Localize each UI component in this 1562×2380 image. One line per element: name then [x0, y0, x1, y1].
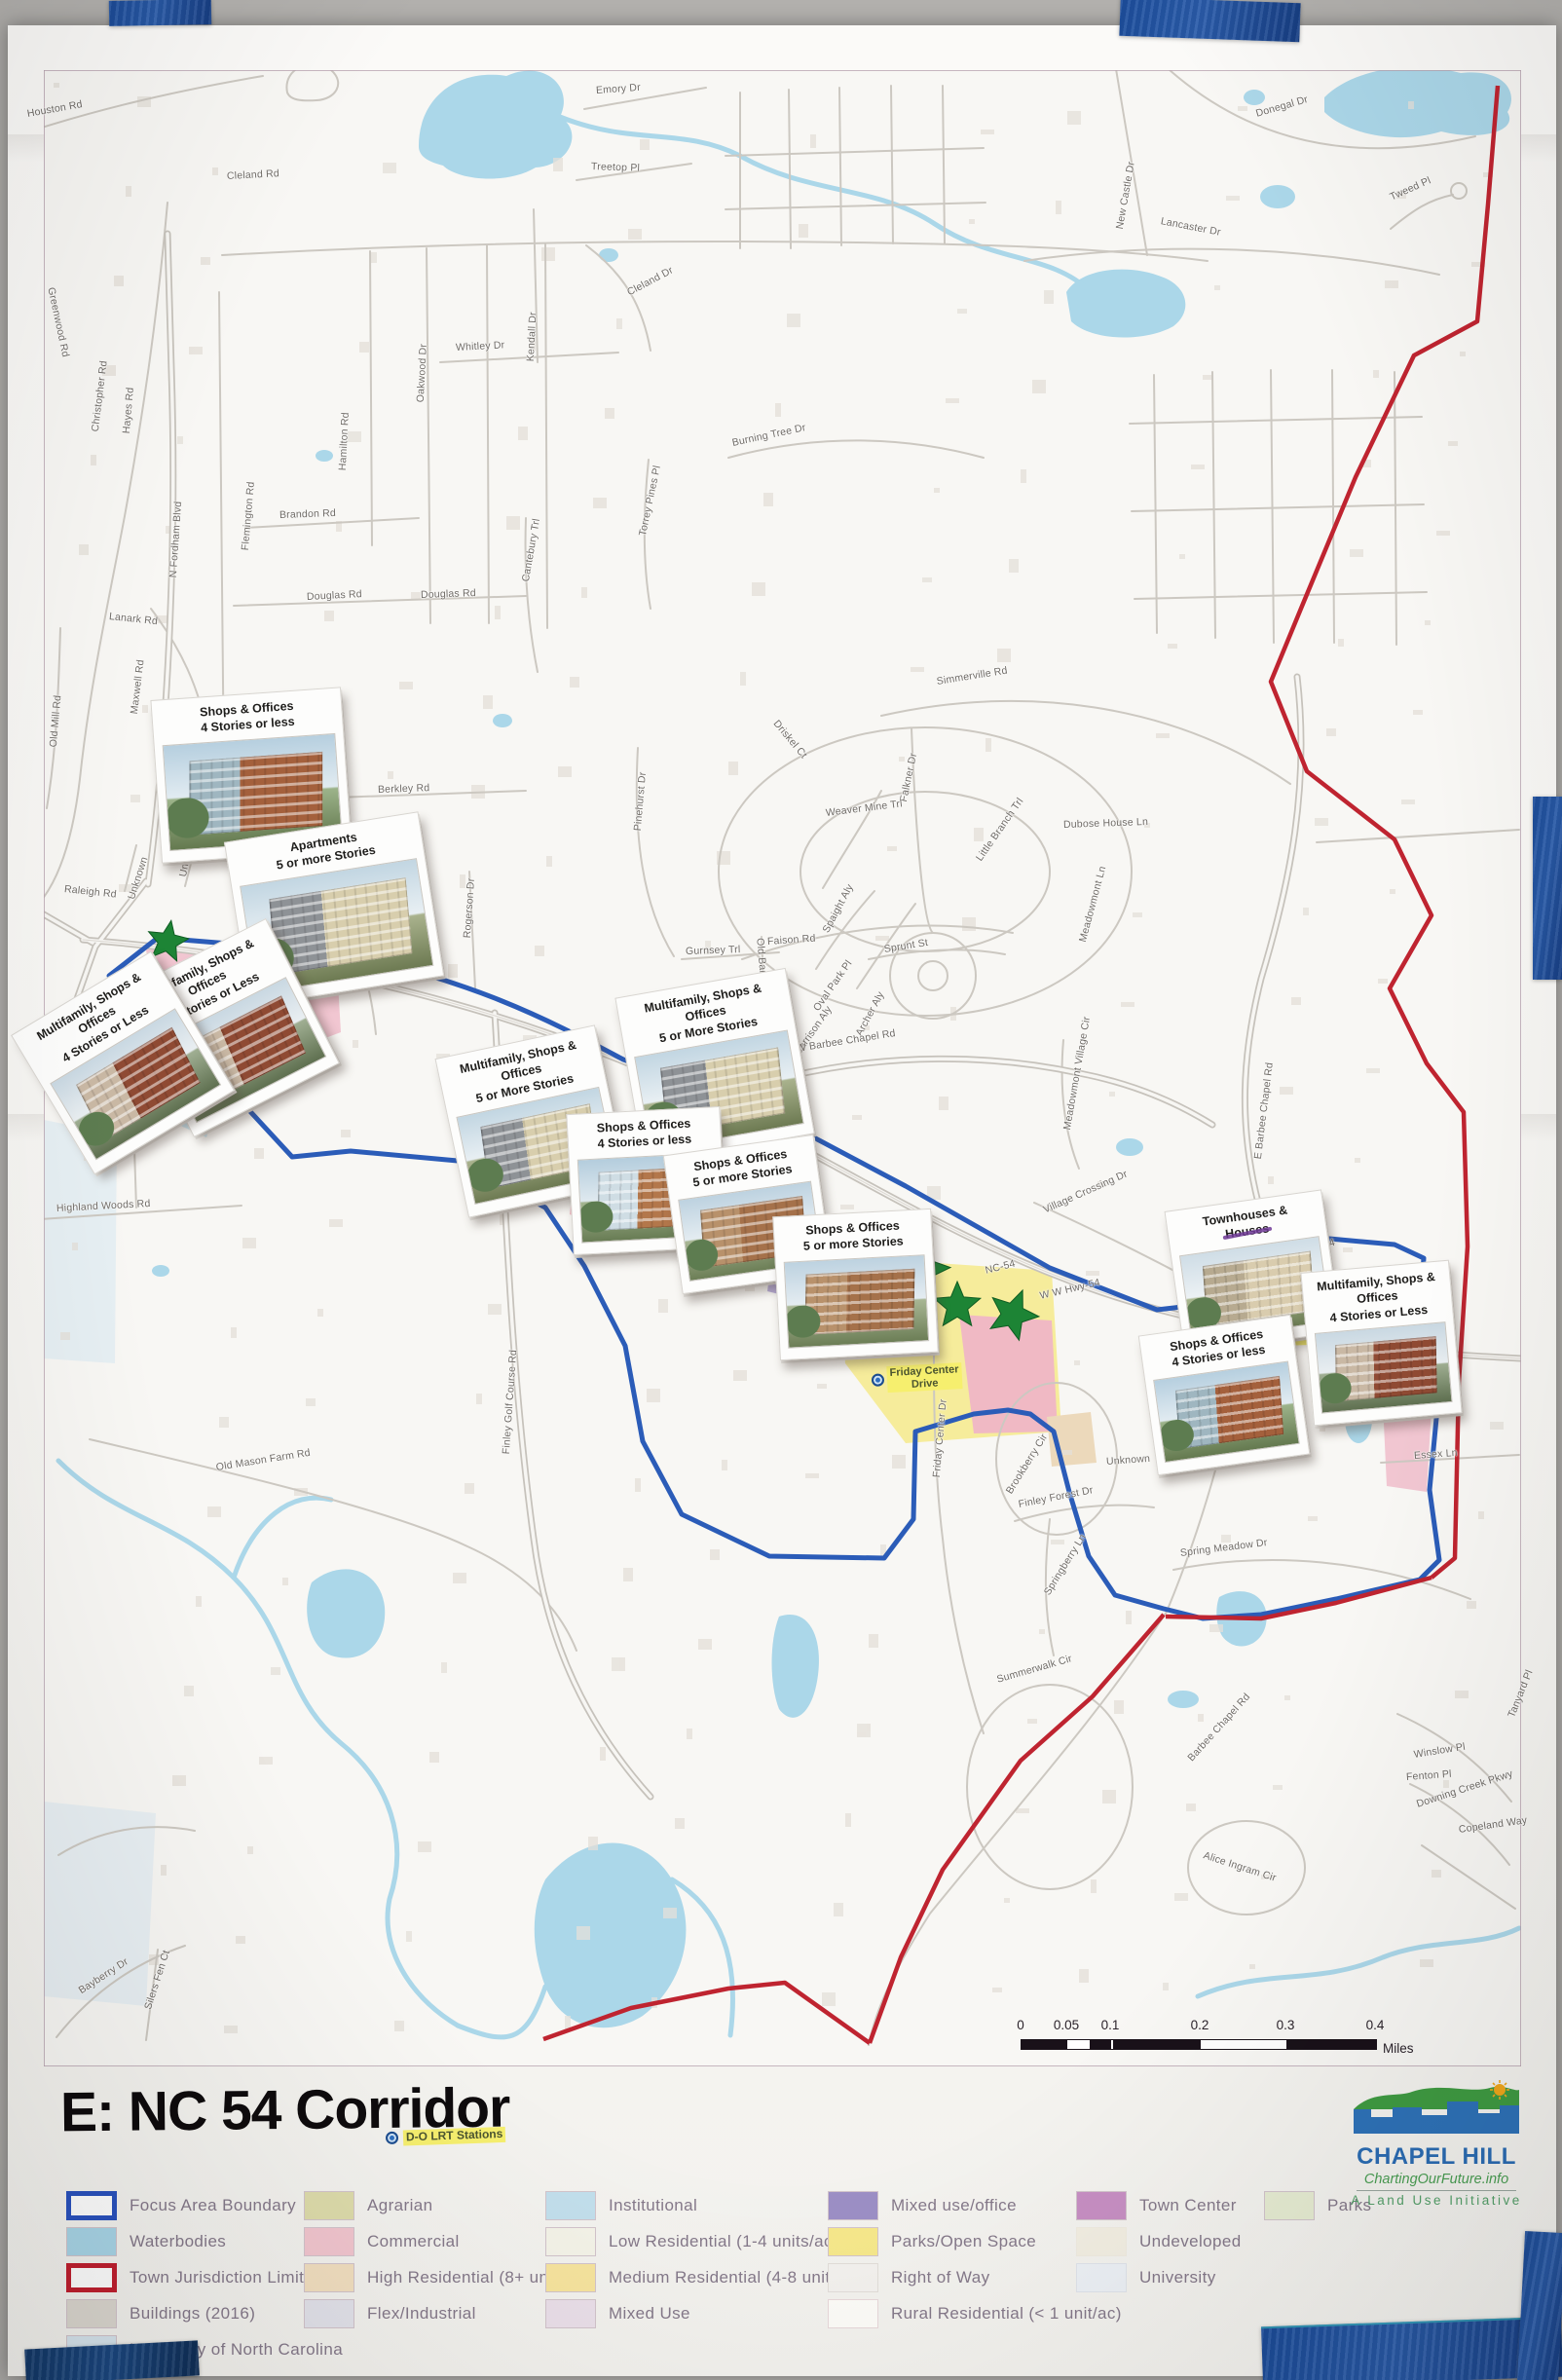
legend-swatch	[545, 2227, 596, 2256]
legend-swatch	[828, 2299, 878, 2328]
legend-item: Mixed use/office	[828, 2191, 1017, 2220]
photo-card-label: Shops & Offices4 Stories or less	[576, 1114, 714, 1153]
legend-label: Low Residential (1-4 units/ac)	[609, 2232, 838, 2251]
legend-item: Rural Residential (< 1 unit/ac)	[828, 2299, 1122, 2328]
legend-label: Town Jurisdiction Limits	[130, 2268, 313, 2287]
legend-swatch	[1264, 2191, 1315, 2220]
legend-item: Focus Area Boundary	[66, 2191, 296, 2220]
legend-swatch	[304, 2263, 354, 2292]
legend-swatch	[828, 2227, 878, 2256]
legend-label: Mixed Use	[609, 2304, 690, 2324]
legend-item: University	[1076, 2263, 1216, 2292]
legend-item: Institutional	[545, 2191, 697, 2220]
legend-swatch	[545, 2299, 596, 2328]
legend-label: Waterbodies	[130, 2232, 226, 2251]
tape-top-left	[109, 0, 211, 26]
legend-swatch	[304, 2227, 354, 2256]
legend-swatch	[1076, 2191, 1127, 2220]
legend-swatch	[1076, 2227, 1127, 2256]
legend-swatch	[66, 2263, 117, 2292]
scale-tick: 0	[1017, 2018, 1024, 2032]
legend-swatch	[304, 2299, 354, 2328]
scale-bar-rule	[1021, 2039, 1377, 2050]
lrt-station-label: Friday CenterDrive	[886, 1362, 962, 1393]
legend-label: Agrarian	[367, 2196, 432, 2215]
legend-item: Right of Way	[828, 2263, 989, 2292]
legend-swatch	[66, 2227, 117, 2256]
legend-item: Commercial	[304, 2227, 460, 2256]
scale-tick: 0.05	[1054, 2018, 1079, 2032]
legend-swatch	[66, 2191, 117, 2220]
photo-card: Shops & Offices4 Stories or less	[1138, 1315, 1311, 1475]
legend-item: Waterbodies	[66, 2227, 226, 2256]
photo-card-label: Shops & Offices5 or more Stories	[782, 1216, 925, 1255]
logo-url: ChartingOurFuture.info	[1349, 2172, 1524, 2187]
road-label: Douglas Rd	[421, 588, 476, 600]
lrt-station-marker: Friday CenterDrive	[871, 1362, 962, 1394]
building-photo	[1153, 1360, 1300, 1463]
scale-tick: 0.2	[1191, 2018, 1209, 2032]
chapel-hill-logo: CHAPEL HILL ChartingOurFuture.info A Lan…	[1349, 2080, 1524, 2208]
legend-swatch	[66, 2299, 117, 2328]
legend-item: Flex/Industrial	[304, 2299, 476, 2328]
legend-label: Commercial	[367, 2232, 460, 2251]
building-photo	[1315, 1321, 1453, 1413]
legend-item: Town Jurisdiction Limits	[66, 2263, 313, 2292]
legend-label: Institutional	[609, 2196, 697, 2215]
road-label: Berkley Rd	[378, 783, 430, 795]
legend-label: Mixed use/office	[891, 2196, 1017, 2215]
legend-item: Parks/Open Space	[828, 2227, 1036, 2256]
photo-card-label: Shops & Offices4 Stories or less	[160, 695, 335, 739]
scale-tick: 0.1	[1101, 2018, 1120, 2032]
legend-swatch	[828, 2191, 878, 2220]
legend-swatch	[545, 2263, 596, 2292]
legend-label: Rural Residential (< 1 unit/ac)	[891, 2304, 1122, 2324]
road-label: Brandon Rd	[279, 508, 336, 521]
logo-tagline: A Land Use Initiative	[1349, 2193, 1524, 2208]
logo-divider	[1357, 2190, 1516, 2191]
scale-tick: 0.4	[1366, 2018, 1385, 2032]
road-label: Gurnsey Trl	[686, 945, 741, 956]
legend-swatch	[545, 2191, 596, 2220]
legend-label: Focus Area Boundary	[130, 2196, 296, 2215]
chapel-hill-skyline-icon	[1354, 2080, 1519, 2137]
legend-swatch	[304, 2191, 354, 2220]
legend-item: Mixed Use	[545, 2299, 690, 2328]
lrt-station-icon	[872, 1373, 885, 1387]
road-label: Kendall Dr	[526, 312, 539, 362]
legend-item: Undeveloped	[1076, 2227, 1242, 2256]
tape-top-right	[1119, 0, 1300, 42]
legend-item: Low Residential (1-4 units/ac)	[545, 2227, 838, 2256]
legend-item: Medium Residential (4-8 units/ac)	[545, 2263, 868, 2292]
photo-card: Shops & Offices5 or more Stories	[772, 1209, 938, 1360]
legend-swatch	[828, 2263, 878, 2292]
road-label: Treetop Pl	[591, 162, 640, 173]
legend-item: Agrarian	[304, 2191, 432, 2220]
legend-swatch	[1076, 2263, 1127, 2292]
legend-label: Right of Way	[891, 2268, 989, 2287]
logo-wordmark: CHAPEL HILL	[1349, 2143, 1524, 2171]
legend-label: University	[1139, 2268, 1216, 2287]
legend-item: Town Center	[1076, 2191, 1237, 2220]
legend-label: Undeveloped	[1139, 2232, 1242, 2251]
scale-unit: Miles	[1383, 2041, 1414, 2056]
photographed-poster: Houston RdCleland RdGreenwood RdEmory Dr…	[0, 0, 1562, 2380]
legend-item: Buildings (2016)	[66, 2299, 255, 2328]
building-photo	[784, 1254, 929, 1348]
legend-label: Town Center	[1139, 2196, 1237, 2215]
lrt-station-icon	[386, 2132, 398, 2144]
scale-tick: 0.3	[1277, 2018, 1295, 2032]
tape-bottom-right-vertical	[1517, 2231, 1562, 2380]
legend-label: Buildings (2016)	[130, 2304, 255, 2324]
legend-label: Flex/Industrial	[367, 2304, 476, 2324]
photo-card-label: Multifamily, Shops &Offices4 Stories or …	[1310, 1268, 1445, 1326]
photo-card: Multifamily, Shops &Offices4 Stories or …	[1300, 1260, 1462, 1426]
tape-right-edge	[1533, 797, 1562, 980]
road-label: Whitley Dr	[456, 340, 505, 353]
road-label: Cleland Rd	[227, 168, 279, 181]
legend-label: Parks/Open Space	[891, 2232, 1036, 2251]
